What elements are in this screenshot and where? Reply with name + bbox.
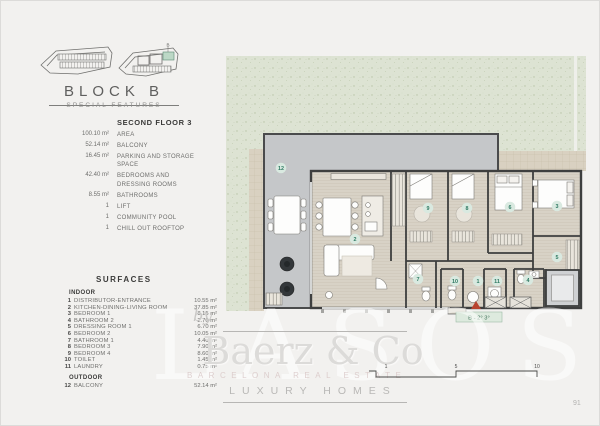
surface-row: 2KITCHEN-DINING-LIVING ROOM37.85 m² [41, 305, 217, 312]
surface-row: 1DISTRIBUTOR-ENTRANCE10.55 m² [41, 298, 217, 305]
glass-wall-left [310, 182, 312, 294]
surface-area: 37.85 m² [179, 305, 217, 312]
surface-name: BATHROOM 1 [74, 338, 114, 345]
room-marker-number-9: 9 [427, 206, 430, 212]
surface-area: 52.14 m² [179, 383, 217, 390]
surface-area: 4.40 m² [179, 338, 217, 345]
surface-row: 11LAUNDRY0.75 m² [41, 364, 217, 371]
feature-value: 1 [41, 214, 109, 220]
surface-number: 7 [41, 338, 71, 345]
surface-number: 3 [41, 311, 71, 318]
surface-row: 10TOILET1.45 m² [41, 357, 217, 364]
room-marker-number-10: 10 [452, 279, 458, 285]
feature-label: LIFT [117, 203, 131, 212]
feature-label: COMMUNITY POOL [117, 214, 176, 223]
feature-row: 1LIFT [41, 203, 216, 212]
surface-row: 5DRESSING ROOM 16.70 m² [41, 324, 217, 331]
surface-number: 5 [41, 324, 71, 331]
feature-value: 52.14 m² [41, 142, 109, 148]
surface-number: 12 [41, 383, 71, 390]
surface-number: 9 [41, 351, 71, 358]
scale-bar: 1510 [364, 361, 554, 385]
surface-row: 8BEDROOM 37.90 m² [41, 344, 217, 351]
surface-area: 10.05 m² [179, 331, 217, 338]
garden-path [574, 56, 577, 151]
block-title: BLOCK B [49, 83, 179, 100]
feature-value: 1 [41, 225, 109, 231]
scale-tick-5: 5 [455, 364, 458, 370]
unit-b-label: B [166, 43, 169, 47]
surface-area: 8.60 m² [179, 351, 217, 358]
lift [546, 270, 579, 306]
surface-area: 10.55 m² [179, 298, 217, 305]
watermark-rule-top [223, 331, 407, 332]
feature-label: BATHROOMS [117, 192, 158, 201]
surface-area: 8.15 m² [179, 311, 217, 318]
room-marker-number-5: 5 [556, 255, 559, 261]
surface-name: LAUNDRY [74, 364, 103, 371]
room-marker-number-8: 8 [466, 206, 469, 212]
surface-name: BEDROOM 4 [74, 351, 111, 358]
facade-ticks [321, 309, 434, 313]
surface-number: 6 [41, 331, 71, 338]
surface-row: 3BEDROOM 18.15 m² [41, 311, 217, 318]
feature-value: 100.10 m² [41, 131, 109, 137]
surfaces-title: SURFACES [96, 275, 217, 284]
highlighted-unit-b [163, 52, 174, 60]
brand-tagline: LUXURY HOMES [213, 385, 413, 397]
surface-row: 7BATHROOM 14.40 m² [41, 338, 217, 345]
surface-area: 0.75 m² [179, 364, 217, 371]
entrance-label: B - 2° 3° [468, 315, 490, 321]
room-marker-number-2: 2 [354, 237, 357, 243]
room-marker-number-1: 1 [477, 279, 480, 285]
surface-name: DISTRIBUTOR-ENTRANCE [74, 298, 151, 305]
room-marker-number-4: 4 [527, 278, 530, 284]
surface-name: DRESSING ROOM 1 [74, 324, 132, 331]
surfaces-section: SURFACES INDOOR 1DISTRIBUTOR-ENTRANCE10.… [41, 275, 217, 389]
surface-area: 1.45 m² [179, 357, 217, 364]
feature-label: CHILL OUT ROOFTOP [117, 225, 184, 234]
surface-number: 8 [41, 344, 71, 351]
tile-strip-right [498, 151, 586, 171]
surface-row: 12BALCONY52.14 m² [41, 383, 217, 390]
feature-label: BALCONY [117, 142, 148, 151]
tile-strip-left [249, 149, 264, 311]
surface-name: BEDROOM 2 [74, 331, 111, 338]
building-a-parking-rows [58, 54, 106, 68]
surface-name: BATHROOM 2 [74, 318, 114, 325]
feature-label: AREA [117, 131, 135, 140]
feature-row: 100.10 m²AREA [41, 131, 216, 140]
feature-label: PARKING AND STORAGE SPACE [117, 153, 216, 170]
surfaces-indoor-rows: 1DISTRIBUTOR-ENTRANCE10.55 m²2KITCHEN-DI… [41, 298, 217, 371]
room-marker-number-7: 7 [417, 277, 420, 283]
feature-row: 42.40 m²BEDROOMS AND DRESSING ROOMS [41, 172, 216, 189]
room-marker-number-3: 3 [556, 204, 559, 210]
surfaces-outdoor-rows: 12BALCONY52.14 m² [41, 383, 217, 390]
surface-name: BEDROOM 3 [74, 344, 111, 351]
feature-row: 16.45 m²PARKING AND STORAGE SPACE [41, 153, 216, 170]
room-marker-number-11: 11 [494, 279, 500, 285]
surface-number: 1 [41, 298, 71, 305]
watermark-rule-bottom [223, 402, 407, 403]
feature-row: 1COMMUNITY POOL [41, 214, 216, 223]
glass-wall-bottom [322, 307, 450, 309]
building-a-outline [41, 47, 112, 74]
floor-plan: B - 2° 3° 122986357101114 [226, 56, 596, 331]
surface-name: TOILET [74, 357, 95, 364]
feature-value: 1 [41, 203, 109, 209]
scale-tick-10: 10 [534, 364, 540, 370]
surface-number: 2 [41, 305, 71, 312]
surface-name: BALCONY [74, 383, 103, 390]
surface-row: 9BEDROOM 48.60 m² [41, 351, 217, 358]
scale-tick-1: 1 [385, 364, 388, 370]
features-list: 100.10 m²AREA52.14 m²BALCONY16.45 m²PARK… [41, 131, 216, 233]
surface-area: 6.70 m² [179, 324, 217, 331]
page-number: 91 [573, 400, 581, 407]
features-section: SECOND FLOOR 3 100.10 m²AREA52.14 m²BALC… [41, 118, 216, 235]
surface-number: 4 [41, 318, 71, 325]
feature-label: BEDROOMS AND DRESSING ROOMS [117, 172, 177, 189]
surfaces-indoor-label: INDOOR [69, 290, 217, 296]
feature-value: 8.55 m² [41, 192, 109, 198]
surface-row: 4BATHROOM 22.70 m² [41, 318, 217, 325]
surface-row: 6BEDROOM 210.05 m² [41, 331, 217, 338]
feature-value: 42.40 m² [41, 172, 109, 178]
brochure-page: B BLOCK B SPECIAL FEATURES SECOND FLOOR … [0, 0, 600, 426]
surface-name: KITCHEN-DINING-LIVING ROOM [74, 305, 167, 312]
feature-row: 8.55 m²BATHROOMS [41, 192, 216, 201]
surface-name: BEDROOM 1 [74, 311, 111, 318]
features-title: SECOND FLOOR 3 [117, 118, 216, 127]
surface-number: 10 [41, 357, 71, 364]
feature-row: 52.14 m²BALCONY [41, 142, 216, 151]
room-marker-number-12: 12 [278, 166, 284, 172]
feature-value: 16.45 m² [41, 153, 109, 159]
surface-area: 2.70 m² [179, 318, 217, 325]
surface-area: 7.90 m² [179, 344, 217, 351]
surface-number: 11 [41, 364, 71, 371]
room-marker-number-6: 6 [509, 205, 512, 211]
surfaces-outdoor-label: OUTDOOR [69, 375, 217, 381]
scale-labels: 1510 [385, 364, 540, 370]
feature-row: 1CHILL OUT ROOFTOP [41, 225, 216, 234]
block-subtitle: SPECIAL FEATURES [49, 102, 179, 109]
